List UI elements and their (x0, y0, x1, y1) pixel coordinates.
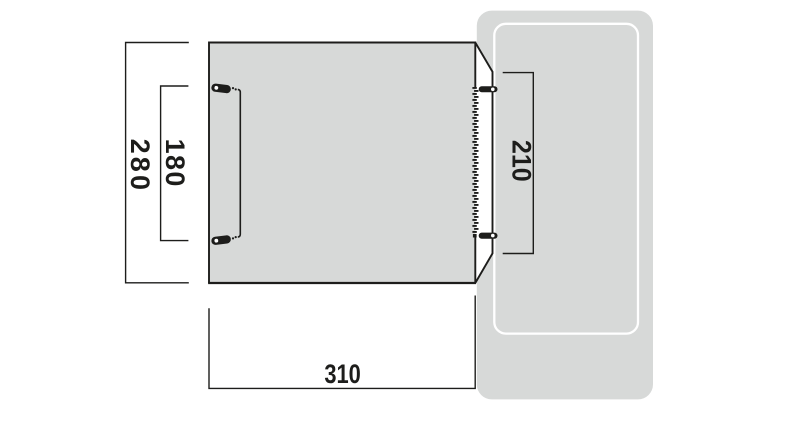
svg-text:180: 180 (160, 139, 190, 188)
svg-text:310: 310 (324, 360, 360, 390)
svg-text:210: 210 (506, 140, 537, 182)
svg-text:280: 280 (125, 139, 155, 194)
